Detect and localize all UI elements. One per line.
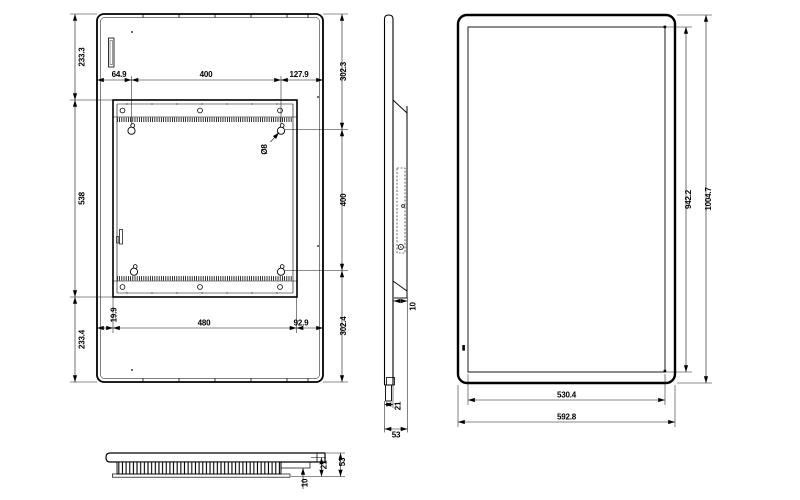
dim-label-top-right: 127.9: [289, 70, 309, 79]
dim-label-left-bottom: 233.4: [78, 329, 87, 349]
bottom-profile: [106, 453, 325, 477]
technical-drawing: 64.9 400 127.9 19.9 480 92.9 233.3 538 2…: [0, 0, 800, 500]
back-view: 64.9 400 127.9 19.9 480 92.9 233.3 538 2…: [70, 14, 348, 382]
dim-label-bottom-right: 92.9: [294, 319, 310, 328]
dim-label-left-top: 233.3: [78, 47, 87, 67]
dim-label-bottom-middle: 480: [198, 319, 211, 328]
back-view-dimensions: 64.9 400 127.9 19.9 480 92.9 233.3 538 2…: [70, 14, 348, 382]
side-foot: [386, 385, 392, 401]
side-profile: [385, 15, 408, 401]
dim-label-inner-height: 942.2: [684, 189, 693, 209]
mount-rail-hidden-edge: [397, 168, 405, 253]
screen-area: [468, 27, 665, 372]
bottom-view-dimensions: 21 53 10: [291, 453, 347, 489]
bottom-lip: [113, 474, 291, 477]
hole-leader-line: [271, 133, 280, 143]
front-view: 942.2 1004.7 530.4 592.8: [458, 15, 713, 427]
plate-connector: [117, 230, 123, 245]
dim-label-inner-width: 530.4: [557, 391, 577, 400]
rail-dots: [126, 103, 277, 293]
dim-label-lip-offset: 10: [301, 478, 310, 487]
drawing-sheet: 64.9 400 127.9 19.9 480 92.9 233.3 538 2…: [0, 0, 800, 500]
front-bezel: [458, 15, 675, 383]
dim-label-outer-height: 1004.7: [704, 187, 713, 211]
hole-callout-label: Ø8: [260, 144, 269, 155]
vent-grille: [117, 462, 281, 474]
dim-label-right-middle: 400: [339, 193, 348, 206]
edge-ticks: [143, 15, 308, 382]
dim-label-bracket-offset: 10: [409, 302, 418, 311]
dim-label-right-top: 302.3: [339, 61, 348, 81]
dim-label-left-middle: 538: [78, 191, 87, 204]
dim-label-bottom-left: 19.9: [110, 307, 119, 323]
dim-label-outer-width: 592.8: [557, 413, 577, 422]
dim-label-body-thickness: 21: [394, 401, 403, 410]
side-view-dimensions: 10 21 53: [385, 298, 418, 440]
bottom-view: 21 53 10: [106, 453, 347, 489]
dim-label-total-depth: 53: [392, 431, 401, 440]
dim-label-top-middle: 400: [200, 70, 213, 79]
panel-dots: [131, 31, 319, 371]
side-view: 10 21 53: [385, 15, 418, 440]
bezel-sensor-mark: [462, 345, 465, 351]
side-slot: [109, 38, 115, 67]
dim-label-top-left: 64.9: [112, 70, 128, 79]
dim-label-right-bottom: 302.4: [339, 316, 348, 336]
dim-label-bottom-depth: 53: [338, 457, 347, 466]
vesa-mount-plate: [113, 100, 297, 297]
rail-holes: [120, 108, 282, 289]
dim-label-bottom-step: 21: [320, 460, 329, 469]
